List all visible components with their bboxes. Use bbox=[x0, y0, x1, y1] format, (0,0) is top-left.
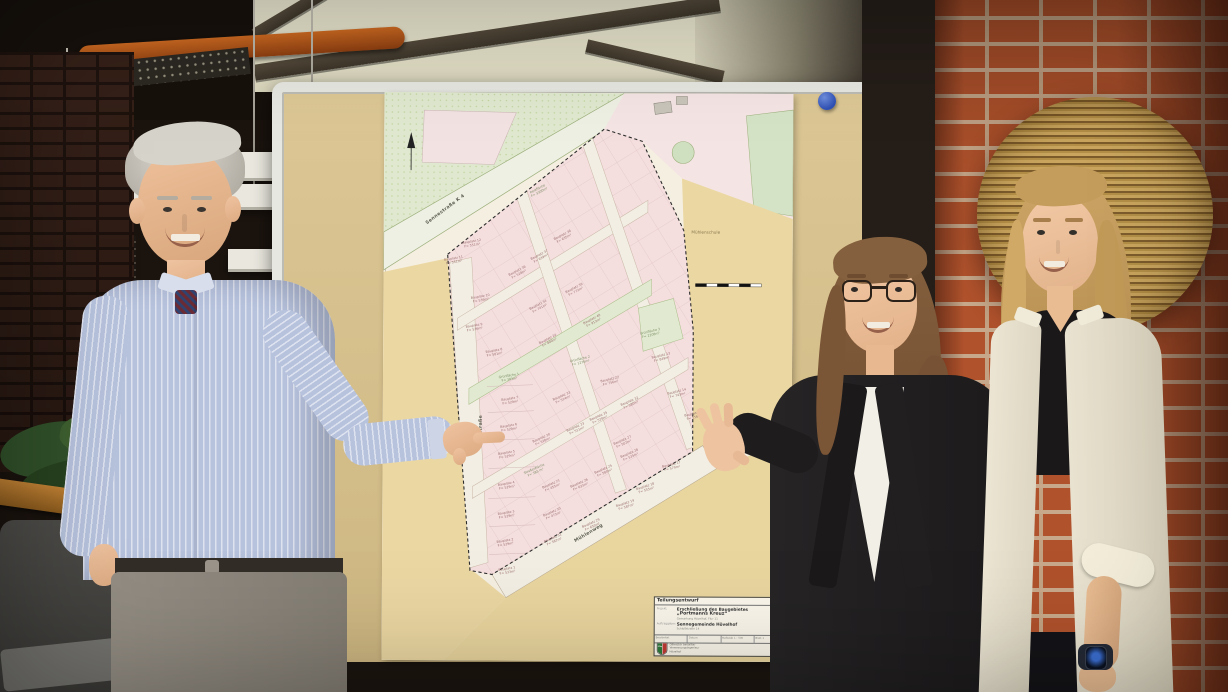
man-face bbox=[138, 148, 233, 266]
man-ear bbox=[225, 196, 241, 222]
woman1-eye bbox=[851, 287, 858, 292]
man-index-finger bbox=[473, 431, 506, 444]
woman2-nose-shadow bbox=[1056, 240, 1060, 254]
woman1-eyebrow bbox=[889, 274, 908, 278]
woman1-eye bbox=[895, 287, 902, 292]
woman2-shirt-right bbox=[1064, 316, 1177, 692]
woman2-eye bbox=[1037, 230, 1045, 235]
woman2-face bbox=[1022, 196, 1098, 293]
woman2-eyebrow bbox=[1033, 218, 1051, 222]
office-photo: RestflächeF= 3300m²Bauplatz 12F= 551m²Ba… bbox=[0, 0, 1228, 692]
woman-blonde bbox=[955, 160, 1228, 692]
man-placket bbox=[194, 298, 197, 578]
green-strip bbox=[746, 110, 794, 216]
man-teeth bbox=[171, 234, 200, 241]
woman1-teeth bbox=[867, 322, 890, 328]
man-pointing bbox=[55, 120, 555, 692]
title-block-label: Auftraggeber: bbox=[657, 621, 677, 630]
woman2-eyebrow bbox=[1065, 218, 1083, 222]
pond bbox=[672, 141, 694, 163]
building bbox=[676, 96, 687, 104]
nrw-coat-of-arms-icon bbox=[657, 642, 668, 655]
woman2-eye bbox=[1069, 230, 1077, 235]
building bbox=[654, 101, 672, 114]
woman1-eyebrow bbox=[847, 274, 866, 278]
blue-pin bbox=[818, 92, 836, 110]
man-eye bbox=[163, 207, 172, 212]
man-trousers bbox=[111, 572, 347, 692]
woman2-teeth bbox=[1044, 261, 1065, 267]
woman1-finger bbox=[724, 403, 734, 427]
woman1-glasses-bridge bbox=[870, 286, 887, 289]
smartwatch-face bbox=[1085, 646, 1107, 670]
man-thumb bbox=[453, 448, 466, 465]
man-eyebrow bbox=[157, 196, 178, 200]
man-eye bbox=[197, 207, 206, 212]
man-eyebrow bbox=[191, 196, 212, 200]
man-ear bbox=[129, 198, 145, 224]
